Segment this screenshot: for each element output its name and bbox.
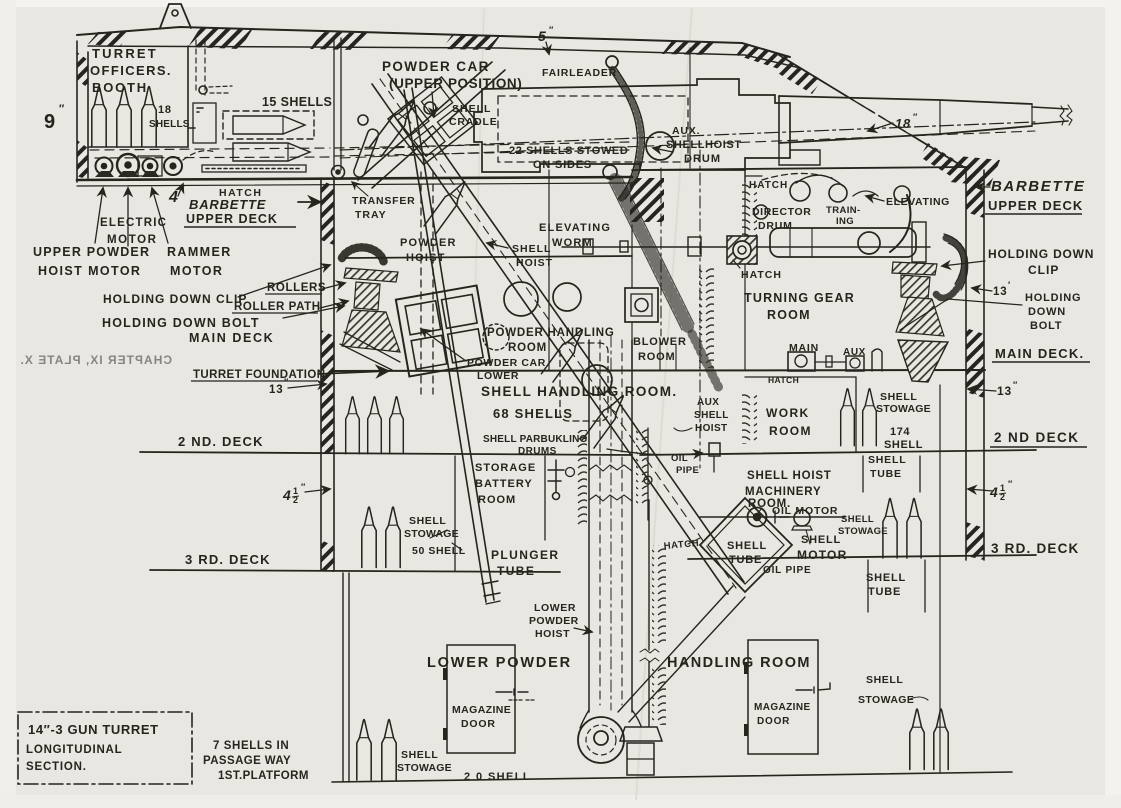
svg-text:STOWAGE: STOWAGE: [404, 528, 459, 540]
svg-text:″: ″: [1013, 380, 1018, 390]
svg-text:2 ND DECK: 2 ND DECK: [994, 430, 1079, 445]
svg-text:4: 4: [168, 189, 179, 206]
svg-text:SHELL: SHELL: [401, 749, 438, 761]
svg-text:PLUNGER: PLUNGER: [491, 548, 559, 562]
svg-text:BARBETTE: BARBETTE: [991, 178, 1085, 195]
svg-text:68 SHELLS: 68 SHELLS: [493, 406, 573, 421]
svg-text:MAGAZINE: MAGAZINE: [754, 702, 811, 713]
svg-text:POWDER HANDLING: POWDER HANDLING: [487, 327, 615, 339]
svg-text:174: 174: [890, 426, 910, 438]
svg-text:13: 13: [993, 286, 1007, 298]
svg-text:18: 18: [158, 104, 172, 116]
svg-text:ROOM: ROOM: [767, 308, 811, 322]
svg-text:BATTERY: BATTERY: [475, 478, 533, 490]
svg-text:ELEVATING: ELEVATING: [886, 196, 950, 208]
svg-text:14″-3 GUN TURRET: 14″-3 GUN TURRET: [28, 722, 159, 737]
svg-text:STOWAGE: STOWAGE: [858, 694, 914, 706]
svg-text:OFFICERS.: OFFICERS.: [90, 63, 172, 78]
svg-text:SHELLHOIST: SHELLHOIST: [666, 139, 742, 151]
svg-text:13: 13: [269, 384, 283, 396]
svg-text:ROOM: ROOM: [478, 494, 516, 506]
svg-text:TRAY: TRAY: [355, 209, 387, 221]
svg-text:SHELL HANDLING ROOM.: SHELL HANDLING ROOM.: [481, 384, 678, 399]
svg-text:AUX: AUX: [697, 397, 719, 408]
svg-text:″: ″: [301, 482, 306, 492]
svg-text:UPPER POWDER: UPPER POWDER: [33, 245, 150, 259]
svg-text:CLIP: CLIP: [1028, 263, 1059, 277]
svg-text:SHELL: SHELL: [694, 410, 729, 421]
svg-text:SHELL PARBUKLING: SHELL PARBUKLING: [483, 434, 588, 445]
svg-text:18: 18: [895, 116, 911, 131]
svg-text:ON SIDES: ON SIDES: [533, 159, 592, 171]
svg-text:″: ″: [284, 377, 289, 387]
svg-text:SHELL: SHELL: [868, 454, 906, 466]
svg-text:4: 4: [989, 484, 999, 500]
svg-text:ING: ING: [836, 216, 854, 227]
svg-text:15 SHELLS: 15 SHELLS: [262, 95, 332, 109]
svg-text:5: 5: [538, 28, 547, 44]
svg-text:LOWER POWDER: LOWER POWDER: [427, 655, 572, 671]
svg-text:SHELL: SHELL: [841, 514, 874, 525]
svg-text:HOLDING DOWN BOLT: HOLDING DOWN BOLT: [102, 316, 260, 330]
svg-text:1ST.PLATFORM: 1ST.PLATFORM: [218, 770, 309, 782]
svg-text:HOLDING DOWN: HOLDING DOWN: [988, 247, 1094, 261]
svg-text:BOOTH: BOOTH: [92, 80, 148, 95]
svg-text:TUBE: TUBE: [868, 586, 901, 598]
svg-text:ELEVATING: ELEVATING: [539, 222, 611, 234]
svg-text:CRADLE: CRADLE: [449, 116, 498, 128]
svg-text:HOLDING DOWN CLIP: HOLDING DOWN CLIP: [103, 292, 247, 306]
svg-text:MOTOR: MOTOR: [170, 264, 223, 278]
svg-text:HANDLING ROOM: HANDLING ROOM: [667, 655, 811, 671]
svg-text:MAIN DECK: MAIN DECK: [189, 331, 274, 345]
svg-text:SHELL: SHELL: [452, 103, 491, 115]
svg-text:9: 9: [44, 111, 57, 133]
svg-text:PASSAGE WAY: PASSAGE WAY: [203, 755, 291, 767]
svg-text:TUBE: TUBE: [729, 554, 762, 566]
svg-text:LOWER: LOWER: [477, 370, 519, 382]
svg-text:DIRECTOR: DIRECTOR: [752, 206, 811, 218]
svg-text:HOIST MOTOR: HOIST MOTOR: [38, 264, 141, 278]
svg-text:SHELLS: SHELLS: [149, 119, 190, 130]
svg-text:ROOM: ROOM: [769, 424, 812, 438]
svg-text:TURRET FOUNDATION: TURRET FOUNDATION: [193, 369, 325, 381]
svg-text:DOOR: DOOR: [757, 716, 790, 727]
svg-text:TUBE: TUBE: [497, 564, 535, 578]
svg-text:TUBE: TUBE: [870, 468, 902, 480]
svg-text:″: ″: [1008, 479, 1013, 489]
svg-text:SHELL: SHELL: [512, 243, 551, 255]
svg-text:UPPER DECK: UPPER DECK: [186, 212, 278, 226]
svg-text:OIL PIPE: OIL PIPE: [763, 565, 811, 576]
svg-text:DOWN: DOWN: [1028, 306, 1066, 318]
svg-text:AUX.: AUX.: [672, 125, 700, 137]
svg-text:LOWER: LOWER: [534, 602, 576, 614]
svg-text:UPPER DECK: UPPER DECK: [988, 198, 1083, 213]
svg-text:OIL MOTOR: OIL MOTOR: [772, 505, 838, 517]
svg-text:′: ′: [1008, 280, 1011, 290]
svg-text:HOIST: HOIST: [695, 423, 728, 434]
svg-text:SHELL HOIST: SHELL HOIST: [747, 470, 832, 482]
svg-text:DRUM: DRUM: [758, 220, 793, 232]
svg-text:SHELL: SHELL: [866, 674, 903, 686]
svg-text:ELECTRIC: ELECTRIC: [100, 217, 167, 229]
svg-text:FAIRLEADER: FAIRLEADER: [542, 67, 617, 79]
svg-text:13: 13: [997, 384, 1012, 398]
svg-text:SHELL: SHELL: [884, 439, 923, 451]
svg-text:″: ″: [549, 25, 554, 35]
svg-text:″: ″: [59, 103, 65, 115]
svg-text:STOWAGE: STOWAGE: [397, 762, 452, 774]
svg-text:CHAPTER IX, PLATE X.: CHAPTER IX, PLATE X.: [20, 353, 172, 367]
svg-text:3 RD. DECK: 3 RD. DECK: [185, 552, 271, 567]
svg-text:AUX: AUX: [843, 347, 866, 358]
svg-text:WORK: WORK: [766, 406, 810, 420]
svg-text:BARBETTE: BARBETTE: [189, 197, 266, 212]
svg-text:HOLDING: HOLDING: [1025, 292, 1081, 304]
svg-text:POWDER: POWDER: [529, 615, 579, 627]
svg-text:SHELL: SHELL: [880, 391, 917, 403]
svg-text:DRUM: DRUM: [684, 153, 721, 165]
svg-text:3 RD. DECK: 3 RD. DECK: [991, 541, 1080, 556]
svg-text:TRAIN-: TRAIN-: [826, 205, 861, 216]
svg-text:PIPE: PIPE: [676, 465, 699, 476]
svg-text:RAMMER: RAMMER: [167, 245, 232, 259]
svg-text:2 ND. DECK: 2 ND. DECK: [178, 434, 264, 449]
svg-text:DOOR: DOOR: [461, 718, 496, 730]
svg-text:″: ″: [913, 112, 918, 122]
svg-text:TURRET: TURRET: [92, 46, 158, 61]
svg-text:HOIST: HOIST: [406, 252, 446, 264]
svg-text:BLOWER: BLOWER: [633, 336, 687, 348]
svg-text:7 SHELLS IN: 7 SHELLS IN: [213, 740, 289, 752]
svg-text:SHELL: SHELL: [866, 572, 906, 584]
svg-text:WORM: WORM: [552, 237, 593, 249]
svg-text:POWDER CAR: POWDER CAR: [382, 59, 490, 74]
svg-text:SHELL: SHELL: [727, 540, 767, 552]
svg-text:SHELL: SHELL: [409, 515, 446, 527]
svg-text:HATCH: HATCH: [741, 269, 782, 281]
svg-text:MAGAZINE: MAGAZINE: [452, 704, 511, 716]
svg-text:MACHINERY: MACHINERY: [745, 486, 821, 498]
svg-text:ROOM: ROOM: [508, 342, 547, 354]
svg-text:HOIST: HOIST: [516, 257, 553, 269]
svg-text:ROOM: ROOM: [638, 351, 675, 363]
svg-text:SHELL: SHELL: [801, 534, 841, 546]
svg-text:SECTION.: SECTION.: [26, 761, 87, 773]
svg-text:TRANSFER: TRANSFER: [352, 195, 416, 207]
svg-text:22 SHELLS STOWED: 22 SHELLS STOWED: [509, 145, 628, 157]
svg-text:TURNING GEAR: TURNING GEAR: [744, 291, 855, 305]
svg-text:STORAGE: STORAGE: [475, 462, 536, 474]
svg-text:(UPPER POSITION): (UPPER POSITION): [389, 76, 522, 91]
svg-text:BOLT: BOLT: [1030, 320, 1062, 332]
svg-text:2 0 SHELL: 2 0 SHELL: [464, 771, 531, 783]
svg-text:DRUMS: DRUMS: [518, 446, 557, 457]
svg-text:POWDER CAR: POWDER CAR: [467, 357, 546, 369]
svg-text:STOWAGE: STOWAGE: [876, 403, 931, 415]
svg-text:MAIN DECK.: MAIN DECK.: [995, 346, 1084, 361]
svg-text:LONGITUDINAL: LONGITUDINAL: [26, 744, 122, 756]
svg-text:STOWAGE: STOWAGE: [838, 526, 888, 537]
svg-text:4: 4: [282, 487, 292, 503]
svg-text:MAIN: MAIN: [789, 342, 819, 354]
svg-text:HOIST: HOIST: [535, 628, 570, 640]
svg-text:HATCH: HATCH: [768, 375, 799, 385]
svg-text:MOTOR: MOTOR: [797, 548, 847, 562]
svg-text:POWDER: POWDER: [400, 237, 457, 249]
svg-text:ROLLER PATH: ROLLER PATH: [234, 301, 321, 313]
svg-text:HATCH: HATCH: [749, 180, 788, 191]
